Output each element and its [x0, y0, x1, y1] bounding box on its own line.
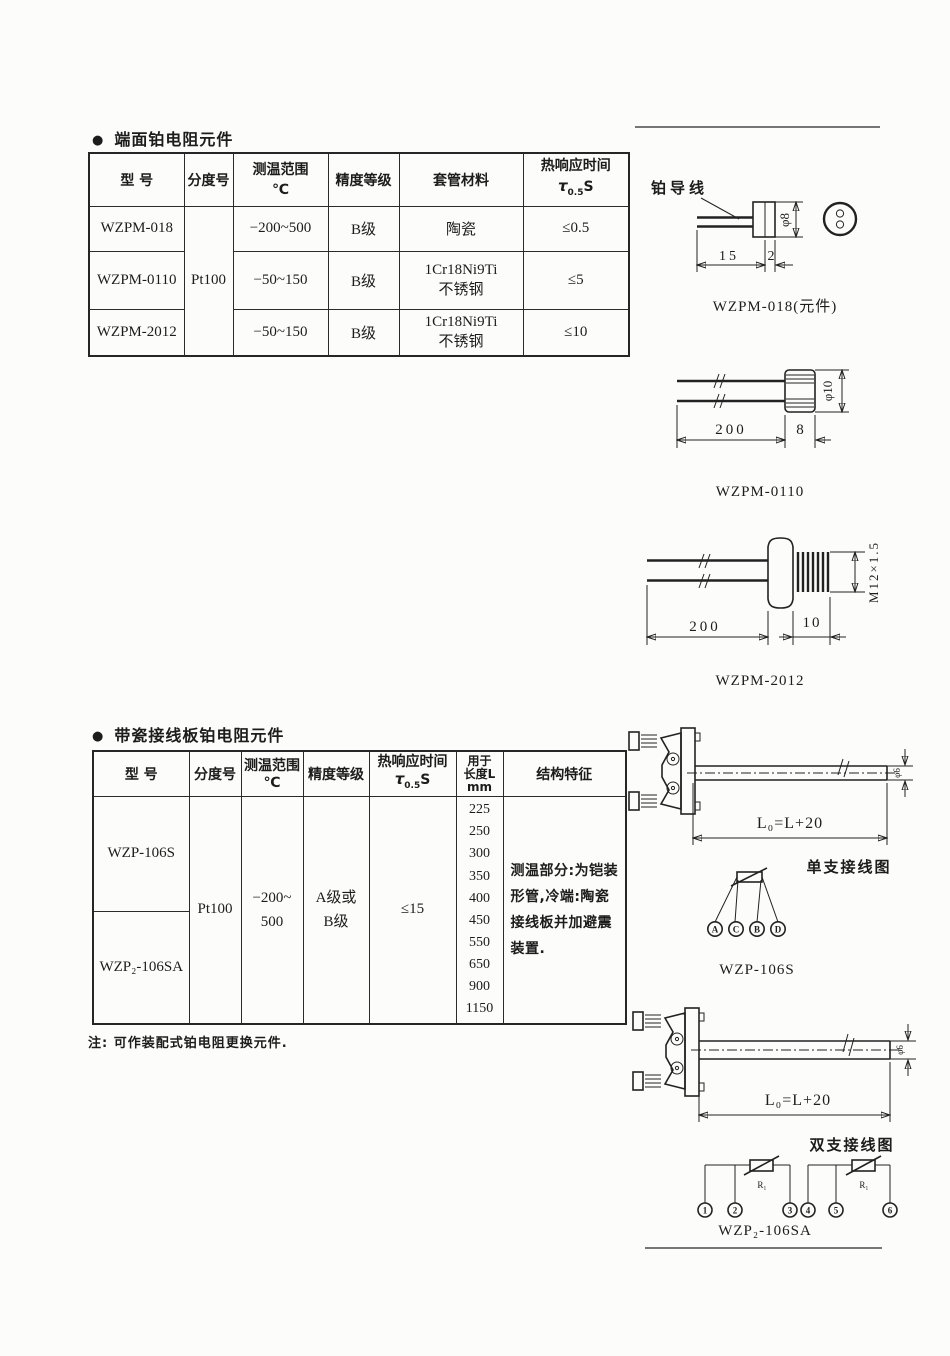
bullet-icon: ● [92, 729, 104, 744]
diagram-wzp2106sa: φ6 L₀=L+20 双支接线图 R₁ 1 2 3 R₁ [615, 990, 950, 1265]
diagram-wzp106s: φ6 L₀=L+20 单支接线图 A C B D WZP-106S [615, 715, 950, 987]
length-value: 350 [457, 866, 503, 888]
t2-h-feature: 结构特征 [503, 751, 626, 796]
t2-cell-model-2: WZP₂-106SA [93, 911, 189, 1024]
thread-spec-label: M12×1.5 [866, 541, 881, 603]
length-value: 900 [457, 976, 503, 998]
lead-wire-label: 铂导线 [651, 179, 708, 197]
t2-h-range: 测温范围℃ [241, 751, 303, 796]
sheath-tube [687, 759, 897, 780]
element-body-drawing [697, 202, 775, 237]
table-end-face-elements: 型 号 分度号 测温范围℃ 精度等级 套管材料 热响应时间τ0.5S WZPM-… [88, 152, 630, 357]
table1-row-wzpm0110: WZPM-0110 −50~150 B级 1Cr18Ni9Ti不锈钢 ≤5 [89, 251, 629, 309]
length-value: 450 [457, 910, 503, 932]
t1-cell-graduation: Pt100 [184, 206, 233, 356]
length-formula-label: L₀=L+20 [765, 1092, 831, 1109]
t1-h-model: 型 号 [89, 153, 184, 206]
dim-200-label: 200 [715, 422, 747, 438]
t2-cell-range: −200~500 [241, 796, 303, 1024]
terminal-label: B [754, 925, 760, 935]
t2-cell-response: ≤15 [369, 796, 456, 1024]
caption-wzp106s: WZP-106S [719, 962, 795, 978]
terminal-head-drawing [633, 1008, 704, 1096]
t1-h-accuracy: 精度等级 [328, 153, 399, 206]
t1-cell-sheath-2: 1Cr18Ni9Ti不锈钢 [399, 309, 523, 356]
t1-h-response: 热响应时间τ0.5S [523, 153, 629, 206]
single-wiring-schematic: A C B D [708, 868, 785, 936]
length-value: 400 [457, 888, 503, 910]
section1-title-text: 端面铂电阻元件 [114, 130, 233, 149]
terminal-label: 1 [703, 1206, 708, 1216]
hex-body [768, 538, 793, 608]
t2-h-model: 型 号 [93, 751, 189, 796]
diameter-label: φ8 [777, 213, 792, 227]
length-dimension [697, 230, 793, 272]
lead-wires [677, 374, 785, 408]
resistor-label: R₁ [859, 1180, 868, 1190]
lead-wires [647, 554, 768, 588]
length-dimension [693, 783, 887, 845]
terminal-label: 6 [888, 1206, 893, 1216]
single-wiring-title: 单支接线图 [806, 858, 891, 876]
t1-cell-sheath-1: 1Cr18Ni9Ti不锈钢 [399, 251, 523, 309]
terminal-label: D [775, 925, 782, 935]
length-value: 550 [457, 932, 503, 954]
dim-8-label: 8 [796, 422, 804, 438]
t1-cell-sheath-0: 陶瓷 [399, 206, 523, 251]
dim-200-label: 200 [689, 619, 721, 635]
t1-cell-model-0: WZPM-018 [89, 206, 184, 251]
thread-dimension [830, 552, 865, 592]
double-wiring-schematic: R₁ 1 2 3 R₁ 4 5 6 [698, 1156, 897, 1217]
table1-row-wzpm018: WZPM-018 Pt100 −200~500 B级 陶瓷 ≤0.5 [89, 206, 629, 251]
table1-row-wzpm2012: WZPM-2012 −50~150 B级 1Cr18Ni9Ti不锈钢 ≤10 [89, 309, 629, 356]
t1-cell-range-2: −50~150 [233, 309, 328, 356]
table2-header-row: 型 号 分度号 测温范围℃ 精度等级 热响应时间τ0.5S 用于长度Lmm 结构… [93, 751, 626, 796]
section2-title: ●带瓷接线板铂电阻元件 [92, 722, 284, 746]
dim-2-label: 2 [768, 249, 775, 264]
diagram-wzpm018: 铂导线 φ8 15 2 WZPM-018(元 [615, 120, 950, 320]
length-value: 250 [457, 821, 503, 843]
thread-section [798, 552, 828, 592]
dim-15-label: 15 [719, 249, 739, 264]
t2-cell-model-1: WZP-106S [93, 796, 189, 911]
element-body-drawing [785, 370, 815, 412]
lead-wire-leader-line [701, 198, 739, 219]
dim-10-label: 10 [803, 615, 822, 631]
t2-h-response: 热响应时间τ0.5S [369, 751, 456, 796]
terminal-label: 5 [834, 1206, 839, 1216]
caption-wzpm0110: WZPM-0110 [716, 484, 804, 500]
t2-h-accuracy: 精度等级 [303, 751, 369, 796]
resistor-label: R₁ [757, 1180, 766, 1190]
t1-cell-accuracy-0: B级 [328, 206, 399, 251]
t1-cell-response-0: ≤0.5 [523, 206, 629, 251]
diameter-label: φ10 [820, 381, 835, 402]
tube-diameter-label: φ6 [892, 768, 902, 778]
caption-wzp2106sa: WZP₂-106SA [718, 1223, 812, 1239]
t1-cell-range-0: −200~500 [233, 206, 328, 251]
table2-row-wzp106s: WZP-106S Pt100 −200~500 A级或B级 ≤15 225 25… [93, 796, 626, 911]
caption-wzpm2012: WZPM-2012 [716, 673, 805, 689]
t1-cell-accuracy-2: B级 [328, 309, 399, 356]
terminal-label: 2 [733, 1206, 738, 1216]
section2-title-text: 带瓷接线板铂电阻元件 [114, 726, 284, 745]
length-value: 300 [457, 843, 503, 865]
t1-cell-response-1: ≤5 [523, 251, 629, 309]
tube-diameter-label: φ6 [895, 1045, 905, 1055]
caption-wzpm018: WZPM-018(元件) [713, 298, 838, 315]
terminal-label: 4 [806, 1206, 811, 1216]
scanned-catalog-page: ●端面铂电阻元件 型 号 分度号 测温范围℃ 精度等级 套管材料 热响应时间τ0… [0, 0, 950, 1356]
table1-header-row: 型 号 分度号 测温范围℃ 精度等级 套管材料 热响应时间τ0.5S [89, 153, 629, 206]
table-terminal-board-elements: 型 号 分度号 测温范围℃ 精度等级 热响应时间τ0.5S 用于长度Lmm 结构… [92, 750, 627, 1025]
t1-cell-model-1: WZPM-0110 [89, 251, 184, 309]
length-formula-label: L₀=L+20 [757, 815, 823, 832]
t2-cell-accuracy: A级或B级 [303, 796, 369, 1024]
t2-cell-feature: 测温部分:为铠装形管,冷端:陶瓷接线板并加避震装置. [503, 796, 626, 1024]
length-value: 225 [457, 799, 503, 821]
sheath-tube [691, 1034, 900, 1059]
t2-cell-graduation: Pt100 [189, 796, 241, 1024]
t1-cell-accuracy-1: B级 [328, 251, 399, 309]
t1-h-graduation: 分度号 [184, 153, 233, 206]
t1-h-sheath: 套管材料 [399, 153, 523, 206]
t2-cell-lengths: 225 250 300 350 400 450 550 650 900 1150 [456, 796, 503, 1024]
diagram-wzpm0110: φ10 200 8 WZPM-0110 [615, 355, 950, 505]
diagram-wzpm2012: M12×1.5 200 10 WZPM-2012 [615, 515, 950, 700]
length-value: 1150 [457, 998, 503, 1020]
t2-h-graduation: 分度号 [189, 751, 241, 796]
t1-h-range: 测温范围℃ [233, 153, 328, 206]
terminal-label: 3 [788, 1206, 793, 1216]
double-wiring-title: 双支接线图 [809, 1136, 894, 1154]
end-view [824, 203, 856, 235]
bullet-icon: ● [92, 133, 104, 148]
footnote: 注: 可作装配式铂电阻更换元件. [88, 1032, 288, 1051]
length-value: 650 [457, 954, 503, 976]
terminal-head-drawing [629, 728, 700, 814]
t1-cell-model-2: WZPM-2012 [89, 309, 184, 356]
terminal-label: C [733, 925, 740, 935]
t1-cell-response-2: ≤10 [523, 309, 629, 356]
section1-title: ●端面铂电阻元件 [92, 126, 233, 150]
t2-h-length: 用于长度Lmm [456, 751, 503, 796]
t1-cell-range-1: −50~150 [233, 251, 328, 309]
terminal-label: A [712, 925, 719, 935]
